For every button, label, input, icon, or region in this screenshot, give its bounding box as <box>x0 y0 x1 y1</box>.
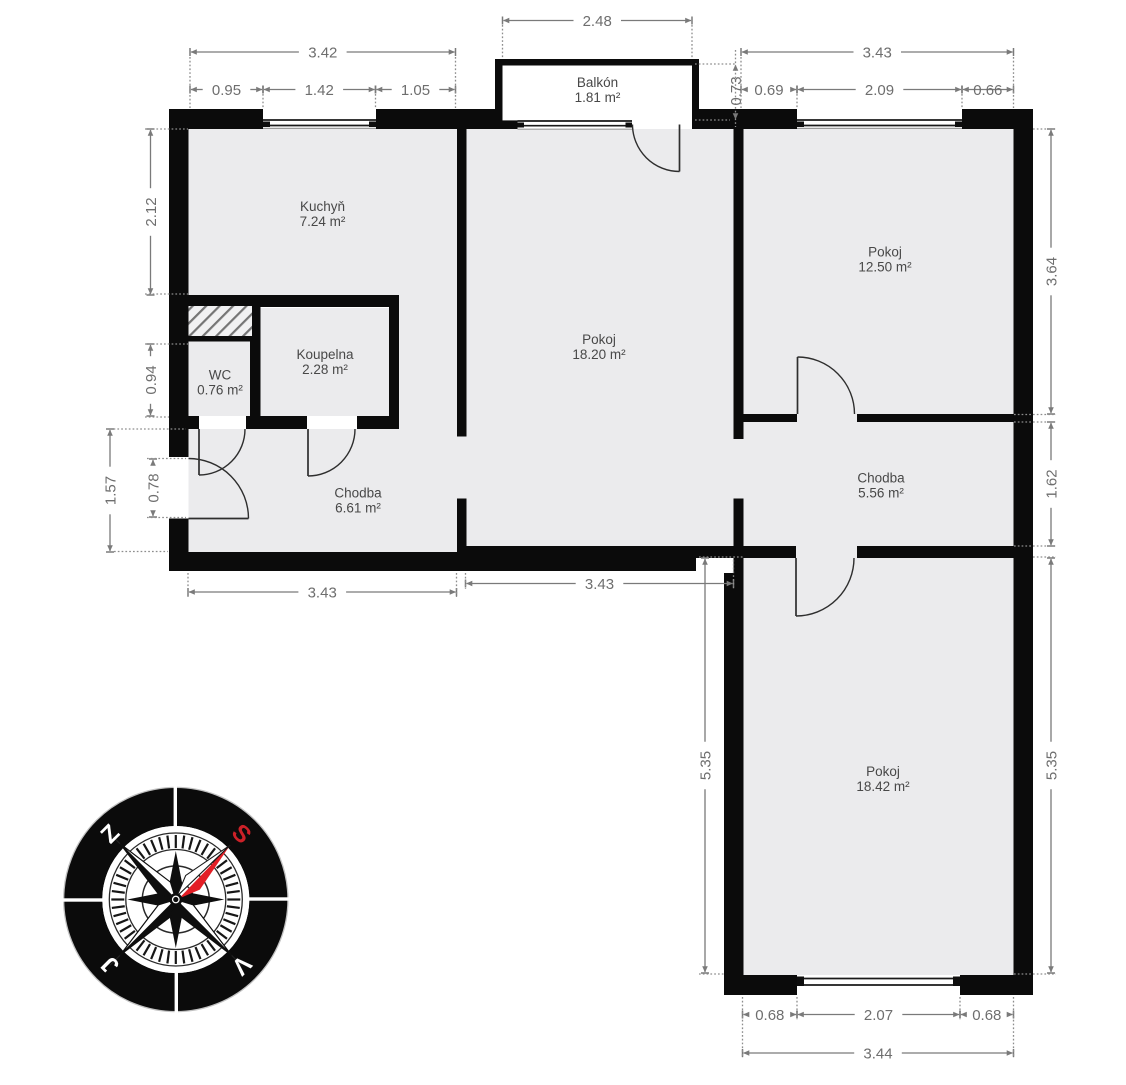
svg-text:3.44: 3.44 <box>863 1045 892 1062</box>
svg-text:1.05: 1.05 <box>401 82 430 99</box>
svg-text:2.09: 2.09 <box>865 82 894 99</box>
svg-text:3.43: 3.43 <box>585 576 614 593</box>
svg-text:2.07: 2.07 <box>864 1007 893 1024</box>
svg-text:5.35: 5.35 <box>1043 751 1060 780</box>
svg-text:1.42: 1.42 <box>305 82 334 99</box>
svg-text:0.78: 0.78 <box>145 473 162 502</box>
svg-text:Chodba: Chodba <box>857 470 905 485</box>
svg-text:3.64: 3.64 <box>1043 257 1060 286</box>
svg-text:2.28 m²: 2.28 m² <box>302 362 348 377</box>
svg-text:3.42: 3.42 <box>308 44 337 61</box>
svg-text:0.73: 0.73 <box>728 76 745 105</box>
svg-text:0.95: 0.95 <box>212 82 241 99</box>
svg-text:3.43: 3.43 <box>863 44 892 61</box>
svg-text:WC: WC <box>209 367 232 382</box>
svg-text:12.50 m²: 12.50 m² <box>858 259 912 274</box>
svg-text:18.42 m²: 18.42 m² <box>856 779 910 794</box>
svg-text:1.57: 1.57 <box>102 476 119 505</box>
svg-text:1.81 m²: 1.81 m² <box>575 90 621 105</box>
svg-text:0.69: 0.69 <box>754 82 783 99</box>
svg-text:1.62: 1.62 <box>1043 469 1060 498</box>
svg-text:18.20 m²: 18.20 m² <box>572 347 626 362</box>
svg-text:0.66: 0.66 <box>973 82 1002 99</box>
svg-text:2.48: 2.48 <box>583 13 612 30</box>
svg-text:0.68: 0.68 <box>972 1007 1001 1024</box>
svg-text:Koupelna: Koupelna <box>296 347 354 362</box>
svg-text:0.94: 0.94 <box>143 365 160 394</box>
svg-text:5.35: 5.35 <box>697 751 714 780</box>
svg-text:5.56 m²: 5.56 m² <box>858 485 904 500</box>
svg-text:Chodba: Chodba <box>334 485 382 500</box>
svg-text:Pokoj: Pokoj <box>868 244 902 259</box>
svg-text:Balkón: Balkón <box>577 75 618 90</box>
svg-text:2.12: 2.12 <box>143 197 160 226</box>
svg-text:0.76 m²: 0.76 m² <box>197 382 243 397</box>
svg-text:7.24 m²: 7.24 m² <box>300 214 346 229</box>
svg-text:0.68: 0.68 <box>755 1007 784 1024</box>
svg-text:Pokoj: Pokoj <box>866 764 900 779</box>
svg-text:Pokoj: Pokoj <box>582 332 616 347</box>
svg-text:3.43: 3.43 <box>308 584 337 601</box>
svg-text:6.61 m²: 6.61 m² <box>335 500 381 515</box>
svg-text:Kuchyň: Kuchyň <box>300 199 345 214</box>
